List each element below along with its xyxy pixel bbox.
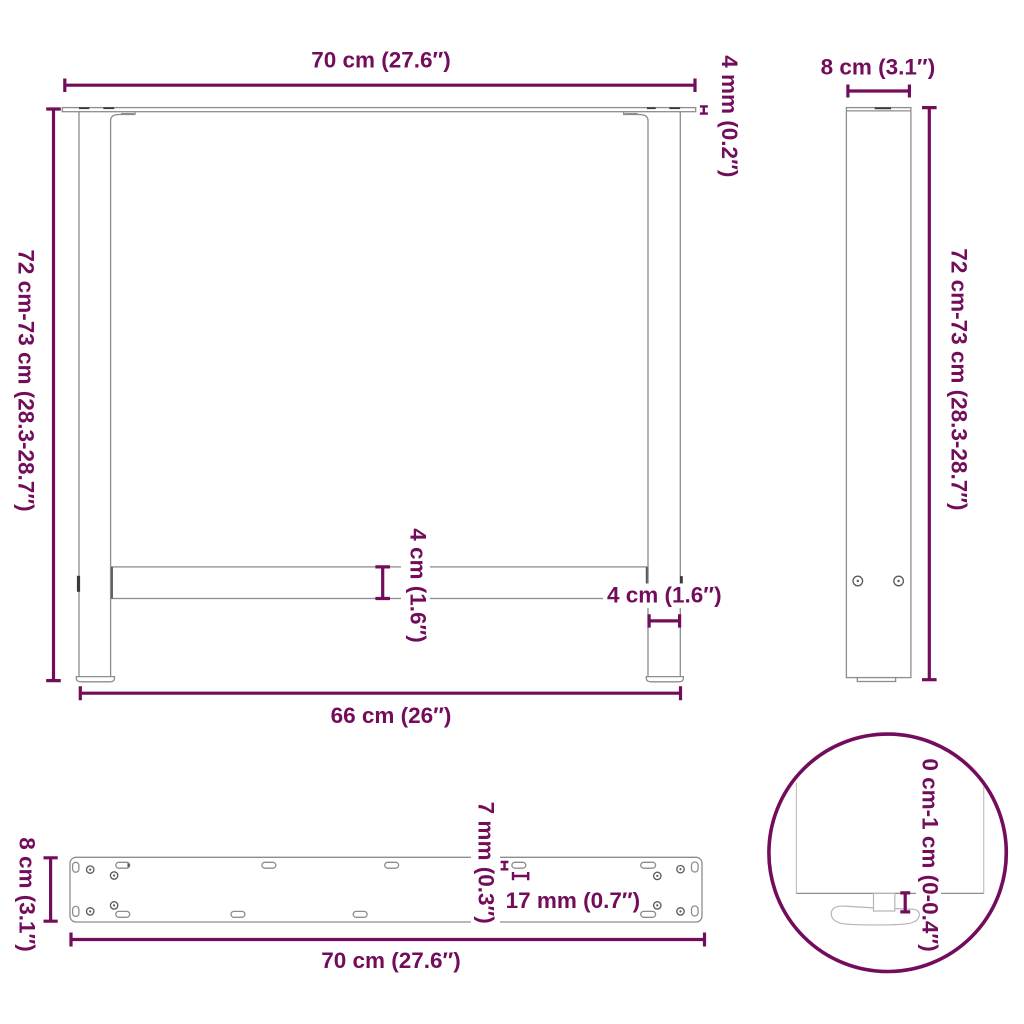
svg-text:8 cm (3.1″): 8 cm (3.1″) — [821, 54, 936, 79]
svg-text:72 cm-73 cm (28.3-28.7″): 72 cm-73 cm (28.3-28.7″) — [14, 249, 39, 511]
svg-text:17 mm (0.7″): 17 mm (0.7″) — [506, 888, 641, 913]
svg-text:70 cm (27.6″): 70 cm (27.6″) — [311, 48, 451, 73]
svg-text:70 cm (27.6″): 70 cm (27.6″) — [321, 948, 461, 973]
svg-text:66 cm (26″): 66 cm (26″) — [331, 703, 452, 728]
svg-text:4 cm (1.6″): 4 cm (1.6″) — [607, 583, 722, 608]
svg-text:4 cm (1.6″): 4 cm (1.6″) — [406, 528, 431, 643]
svg-text:7 mm (0.3″): 7 mm (0.3″) — [474, 802, 499, 924]
svg-text:4 mm (0.2″): 4 mm (0.2″) — [717, 55, 742, 177]
svg-text:8 cm (3.1″): 8 cm (3.1″) — [15, 837, 40, 952]
svg-text:0 cm-1 cm (0-0.4″): 0 cm-1 cm (0-0.4″) — [918, 758, 943, 951]
svg-text:72 cm-73 cm (28.3-28.7″): 72 cm-73 cm (28.3-28.7″) — [947, 248, 972, 510]
